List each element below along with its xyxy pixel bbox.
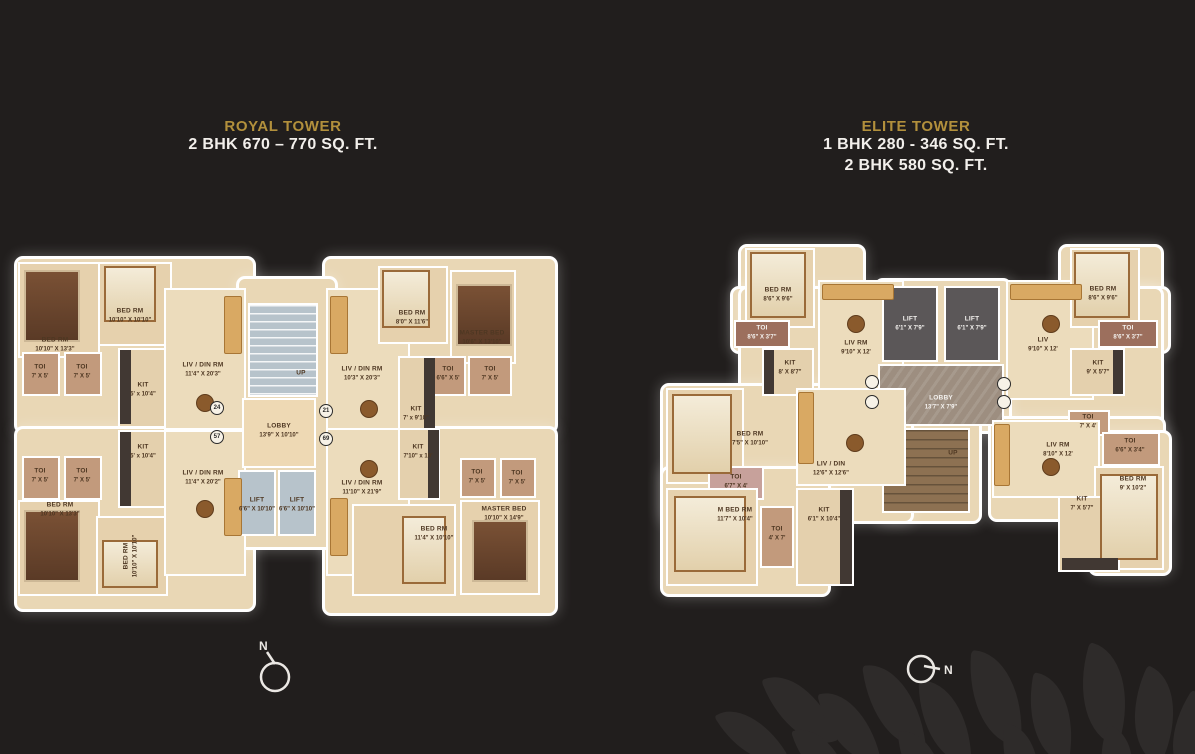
room-dims: 9' X 10'2": [1120, 484, 1146, 492]
room-dims: 13'9" X 10'10": [259, 431, 298, 439]
room-dims: 10'10" X 14'9": [484, 514, 523, 522]
room-name: MASTER BED: [460, 330, 505, 339]
room-label: LIV9'10" X 12': [1028, 337, 1058, 354]
room-dims: 11'7" X 10'4": [717, 515, 753, 523]
royal-tower-title-block: ROYAL TOWER 2 BHK 670 – 770 SQ. FT.: [103, 118, 463, 156]
room-label: MASTER BED10'10" X 14'9": [482, 506, 527, 523]
room-label: KIT5' x 10'4": [130, 382, 156, 399]
room-label: BED RM11'4" X 10'10": [415, 526, 454, 543]
room-dims: 8'6" X 3'7": [1113, 333, 1142, 341]
room-dims: 7' X 5': [32, 372, 49, 380]
compass-needle: [924, 666, 940, 669]
room-name: TOI: [1124, 438, 1135, 447]
room-name: LIV RM: [844, 340, 867, 349]
room-name: LIFT: [250, 497, 265, 506]
room-label: TOI4' X 7': [769, 526, 786, 543]
dining-table-furniture: [847, 315, 865, 333]
room-dims: 8'6" X 9'6": [1088, 294, 1117, 302]
bed-furniture: [472, 520, 528, 582]
room-label: LIV / DIN RM10'3" X 20'3": [341, 366, 382, 383]
elite-tower-title-block: ELITE TOWER 1 BHK 280 - 346 SQ. FT. 2 BH…: [736, 118, 1096, 177]
room-label: TOI6'6" X 5': [436, 366, 459, 383]
room-dims: 7'10" x 10': [403, 452, 432, 460]
room-label: BED RM8'6" X 9'6": [1088, 286, 1117, 303]
room-dims: 7' X 4': [1080, 422, 1097, 430]
room-label: TOI7' X 5': [32, 468, 49, 485]
sofa-furniture: [798, 392, 814, 464]
bed-furniture: [24, 510, 80, 582]
room-dims: 8'6" X 3'7": [747, 333, 776, 341]
room-dims: 10'10" X 13'3": [35, 345, 74, 353]
room-label: BED RM10'10" X 13'3": [40, 502, 79, 519]
room-label: TOI8'6" X 3'7": [1113, 325, 1142, 342]
room-name: BED RM: [1090, 286, 1117, 295]
lift-label: LIFT6'6" X 10'10": [239, 497, 275, 514]
room-dims: 10'10" X 10'10": [109, 316, 152, 324]
door-circle: [997, 395, 1011, 409]
room-name: LIV / DIN RM: [341, 480, 382, 489]
lobby-label: LOBBY13'9" X 10'10": [259, 423, 298, 440]
door-circle: [997, 377, 1011, 391]
room-name: BED RM: [117, 308, 144, 317]
bed-furniture: [750, 252, 806, 318]
royal-tower-title: ROYAL TOWER: [103, 118, 463, 135]
room-label: LIV / DIN12'6" X 12'6": [813, 461, 849, 478]
room-name: LOBBY: [929, 395, 953, 404]
kitchen-counter: [1113, 350, 1123, 394]
room-label: BED RM10'10" X 13'3": [35, 337, 74, 354]
sofa-furniture: [330, 296, 348, 354]
room-name: TOI: [484, 366, 495, 375]
room-dims: 8' X 8'7": [778, 368, 801, 376]
room-dims: 7' X 5': [482, 374, 499, 382]
door-circle: [865, 395, 879, 409]
room-name: M BED RM: [718, 507, 752, 516]
room-dims: 6'1" X 7'9": [895, 324, 924, 332]
room-label: KIT9' X 5'7": [1086, 360, 1109, 377]
room-label: TOI8'6" X 3'7": [747, 325, 776, 342]
room-name: LIV / DIN RM: [182, 470, 223, 479]
room-label: LIV RM9'10" X 12': [841, 340, 871, 357]
room-label: TOI7' X 5': [74, 364, 91, 381]
room-name: BED RM: [123, 543, 132, 570]
room-dims: 7' X 5': [469, 477, 486, 485]
dining-table-furniture: [360, 400, 378, 418]
room-dims: 11'4" X 20'2": [185, 478, 221, 486]
room-dims: 8'6" X 9'6": [763, 295, 792, 303]
compass-circle: [908, 656, 934, 682]
room-label: TOI7' X 5': [482, 366, 499, 383]
room-dims: 6'6" X 3'4": [1115, 446, 1144, 454]
room-name: TOI: [511, 470, 522, 479]
lobby-label: LOBBY13'7" X 7'9": [925, 395, 958, 412]
room-dims: 7' X 5': [32, 476, 49, 484]
room-label: MASTER BED10'6" X 13'10": [460, 330, 505, 347]
room-name: KIT: [1092, 360, 1103, 369]
room-name: KIT: [137, 444, 148, 453]
kitchen-counter: [428, 430, 439, 498]
north-label: N: [259, 639, 268, 653]
room-name: BED RM: [47, 502, 74, 511]
room-dims: 9'10" X 12': [1028, 345, 1058, 353]
room-label: KIT7' x 9'10": [403, 406, 429, 423]
dining-table-furniture: [1042, 315, 1060, 333]
room-dims: 6'1" X 10'4": [808, 515, 841, 523]
room-label: BED RM8'6" X 9'6": [763, 287, 792, 304]
room-name: BED RM: [737, 431, 764, 440]
room-dims: 10'10" X 10'10": [131, 535, 139, 578]
kitchen-counter: [840, 490, 852, 584]
room-dims: 7' X 5'7": [1070, 504, 1093, 512]
room-label: BED RM10'10" X 10'10": [109, 308, 152, 325]
leaf-icon: [1064, 642, 1143, 746]
room-name: TOI: [76, 364, 87, 373]
elite-tower-title: ELITE TOWER: [736, 118, 1096, 135]
room-label: BED RM9' X 10'2": [1120, 476, 1147, 493]
room-name: TOI: [34, 468, 45, 477]
north-compass-right: N: [900, 648, 966, 690]
room-dims: 8'10" X 12': [1043, 450, 1073, 458]
room-name: KIT: [137, 382, 148, 391]
bed-furniture: [672, 394, 732, 474]
room-label: LIV / DIN RM11'4" X 20'2": [182, 470, 223, 487]
room-label: KIT6'1" X 10'4": [808, 507, 841, 524]
room-dims: 8'0" X 11'6": [396, 318, 428, 326]
room-dims: 11'4" X 20'3": [185, 370, 221, 378]
room-name: TOI: [730, 474, 741, 483]
north-label: N: [944, 663, 953, 677]
room-name: KIT: [410, 406, 421, 415]
room-name: BED RM: [421, 526, 448, 535]
unit-number-circle: 24: [210, 401, 224, 415]
door-circle: [865, 375, 879, 389]
room-name: KIT: [818, 507, 829, 516]
bed-furniture: [24, 270, 80, 342]
room-dims: 11'4" X 10'10": [415, 534, 454, 542]
room-label: KIT5' x 10'4": [130, 444, 156, 461]
room-name: TOI: [756, 325, 767, 334]
room-dims: 6'6" X 10'10": [239, 505, 275, 513]
room-dims: 7' X 5': [74, 372, 91, 380]
up-label: UP: [948, 450, 957, 459]
elite-tower-floorplan: BED RM8'6" X 9'6" TOI8'6" X 3'7" KIT8' X…: [650, 238, 1165, 613]
floorplan-brochure: ROYAL TOWER 2 BHK 670 – 770 SQ. FT. ELIT…: [0, 0, 1195, 754]
royal-tower-floorplan: BED RM10'10" X 13'3" BED RM10'10" X 10'1…: [10, 248, 545, 613]
room-label: BED RM10'10" X 10'10": [123, 535, 140, 578]
room-label: TOI6'6" X 3'4": [1115, 438, 1144, 455]
room-name: KIT: [412, 444, 423, 453]
room-name: TOI: [34, 364, 45, 373]
room-dims: 7' X 5': [509, 478, 526, 486]
room-dims: 10'6" X 13'10": [462, 338, 501, 346]
room-name: MASTER BED: [482, 506, 527, 515]
room-label: KIT7' X 5'7": [1070, 496, 1093, 513]
sofa-furniture: [330, 498, 348, 556]
room-label: BED RM7'5" X 10'10": [732, 431, 768, 448]
room-label: M BED RM11'7" X 10'4": [717, 507, 753, 524]
room-name: TOI: [1122, 325, 1133, 334]
sofa-furniture: [822, 284, 894, 300]
room-name: LIV: [1038, 337, 1049, 346]
room-name: TOI: [76, 468, 87, 477]
room-name: BED RM: [765, 287, 792, 296]
kitchen-counter: [1062, 558, 1118, 570]
room-name: LIFT: [903, 316, 918, 325]
room-name: LIV RM: [1046, 442, 1069, 451]
room-label: KIT8' X 8'7": [778, 360, 801, 377]
room-label: TOI7' X 5': [74, 468, 91, 485]
staircase: [248, 303, 318, 397]
lift-label: LIFT6'1" X 7'9": [895, 316, 924, 333]
room-dims: 10'10" X 13'3": [40, 510, 79, 518]
room-dims: 4' X 7': [769, 534, 786, 542]
room-label: TOI7' X 4': [1080, 414, 1097, 431]
dining-table-furniture: [196, 500, 214, 518]
sofa-furniture: [224, 296, 242, 354]
room-label: LIV / DIN RM11'4" X 20'3": [182, 362, 223, 379]
room-dims: 6'6" X 5': [436, 374, 459, 382]
room-dims: 10'3" X 20'3": [344, 374, 380, 382]
dining-table-furniture: [846, 434, 864, 452]
room-dims: 7'5" X 10'10": [732, 439, 768, 447]
north-compass-left: N: [248, 634, 300, 698]
compass-circle: [261, 663, 289, 691]
lift-label: LIFT6'6" X 10'10": [279, 497, 315, 514]
room-dims: 6'7" X 4': [724, 482, 747, 490]
sofa-furniture: [1010, 284, 1082, 300]
room-name: TOI: [442, 366, 453, 375]
unit-number-circle: 57: [210, 430, 224, 444]
room-name: BED RM: [1120, 476, 1147, 485]
room-dims: 7' x 9'10": [403, 414, 429, 422]
room-name: KIT: [784, 360, 795, 369]
room-name: LIV / DIN: [817, 461, 846, 470]
room-name: LIV / DIN RM: [341, 366, 382, 375]
sofa-furniture: [994, 424, 1010, 486]
room-label: TOI6'7" X 4': [724, 474, 747, 491]
elite-tower-subtitle-1bhk: 1 BHK 280 - 346 SQ. FT.: [736, 135, 1096, 156]
room-label: LIV RM8'10" X 12': [1043, 442, 1073, 459]
room-dims: 11'10" X 21'9": [343, 488, 382, 496]
room-dims: 5' x 10'4": [130, 390, 156, 398]
room-name: BED RM: [399, 310, 426, 319]
room-name: LIV / DIN RM: [182, 362, 223, 371]
room-name: LOBBY: [267, 423, 291, 432]
room-name: LIFT: [965, 316, 980, 325]
room-label: TOI7' X 5': [32, 364, 49, 381]
dining-table-furniture: [360, 460, 378, 478]
kitchen-counter: [764, 350, 774, 394]
royal-tower-subtitle: 2 BHK 670 – 770 SQ. FT.: [103, 135, 463, 156]
room-dims: 13'7" X 7'9": [925, 403, 958, 411]
room-name: LIFT: [290, 497, 305, 506]
up-label: UP: [296, 370, 305, 379]
room-dims: 9'10" X 12': [841, 348, 871, 356]
room-dims: 12'6" X 12'6": [813, 469, 849, 477]
unit-number-circle: 69: [319, 432, 333, 446]
room-dims: 9' X 5'7": [1086, 368, 1109, 376]
elite-tower-subtitle-2bhk: 2 BHK 580 SQ. FT.: [736, 156, 1096, 177]
lift-label: LIFT6'1" X 7'9": [957, 316, 986, 333]
room-label: LIV / DIN RM11'10" X 21'9": [341, 480, 382, 497]
room-name: BED RM: [42, 337, 69, 346]
room-dims: 6'1" X 7'9": [957, 324, 986, 332]
room-name: TOI: [1082, 414, 1093, 423]
room-name: TOI: [471, 469, 482, 478]
room-dims: 6'6" X 10'10": [279, 505, 315, 513]
room-label: TOI7' X 5': [509, 470, 526, 487]
unit-number-circle: 21: [319, 404, 333, 418]
room-label: TOI7' X 5': [469, 469, 486, 486]
room-dims: 5' x 10'4": [130, 452, 156, 460]
room-name: KIT: [1076, 496, 1087, 505]
dining-table-furniture: [1042, 458, 1060, 476]
room-name: TOI: [771, 526, 782, 535]
room-dims: 7' X 5': [74, 476, 91, 484]
room-label: KIT7'10" x 10': [403, 444, 432, 461]
room-label: BED RM8'0" X 11'6": [396, 310, 428, 327]
